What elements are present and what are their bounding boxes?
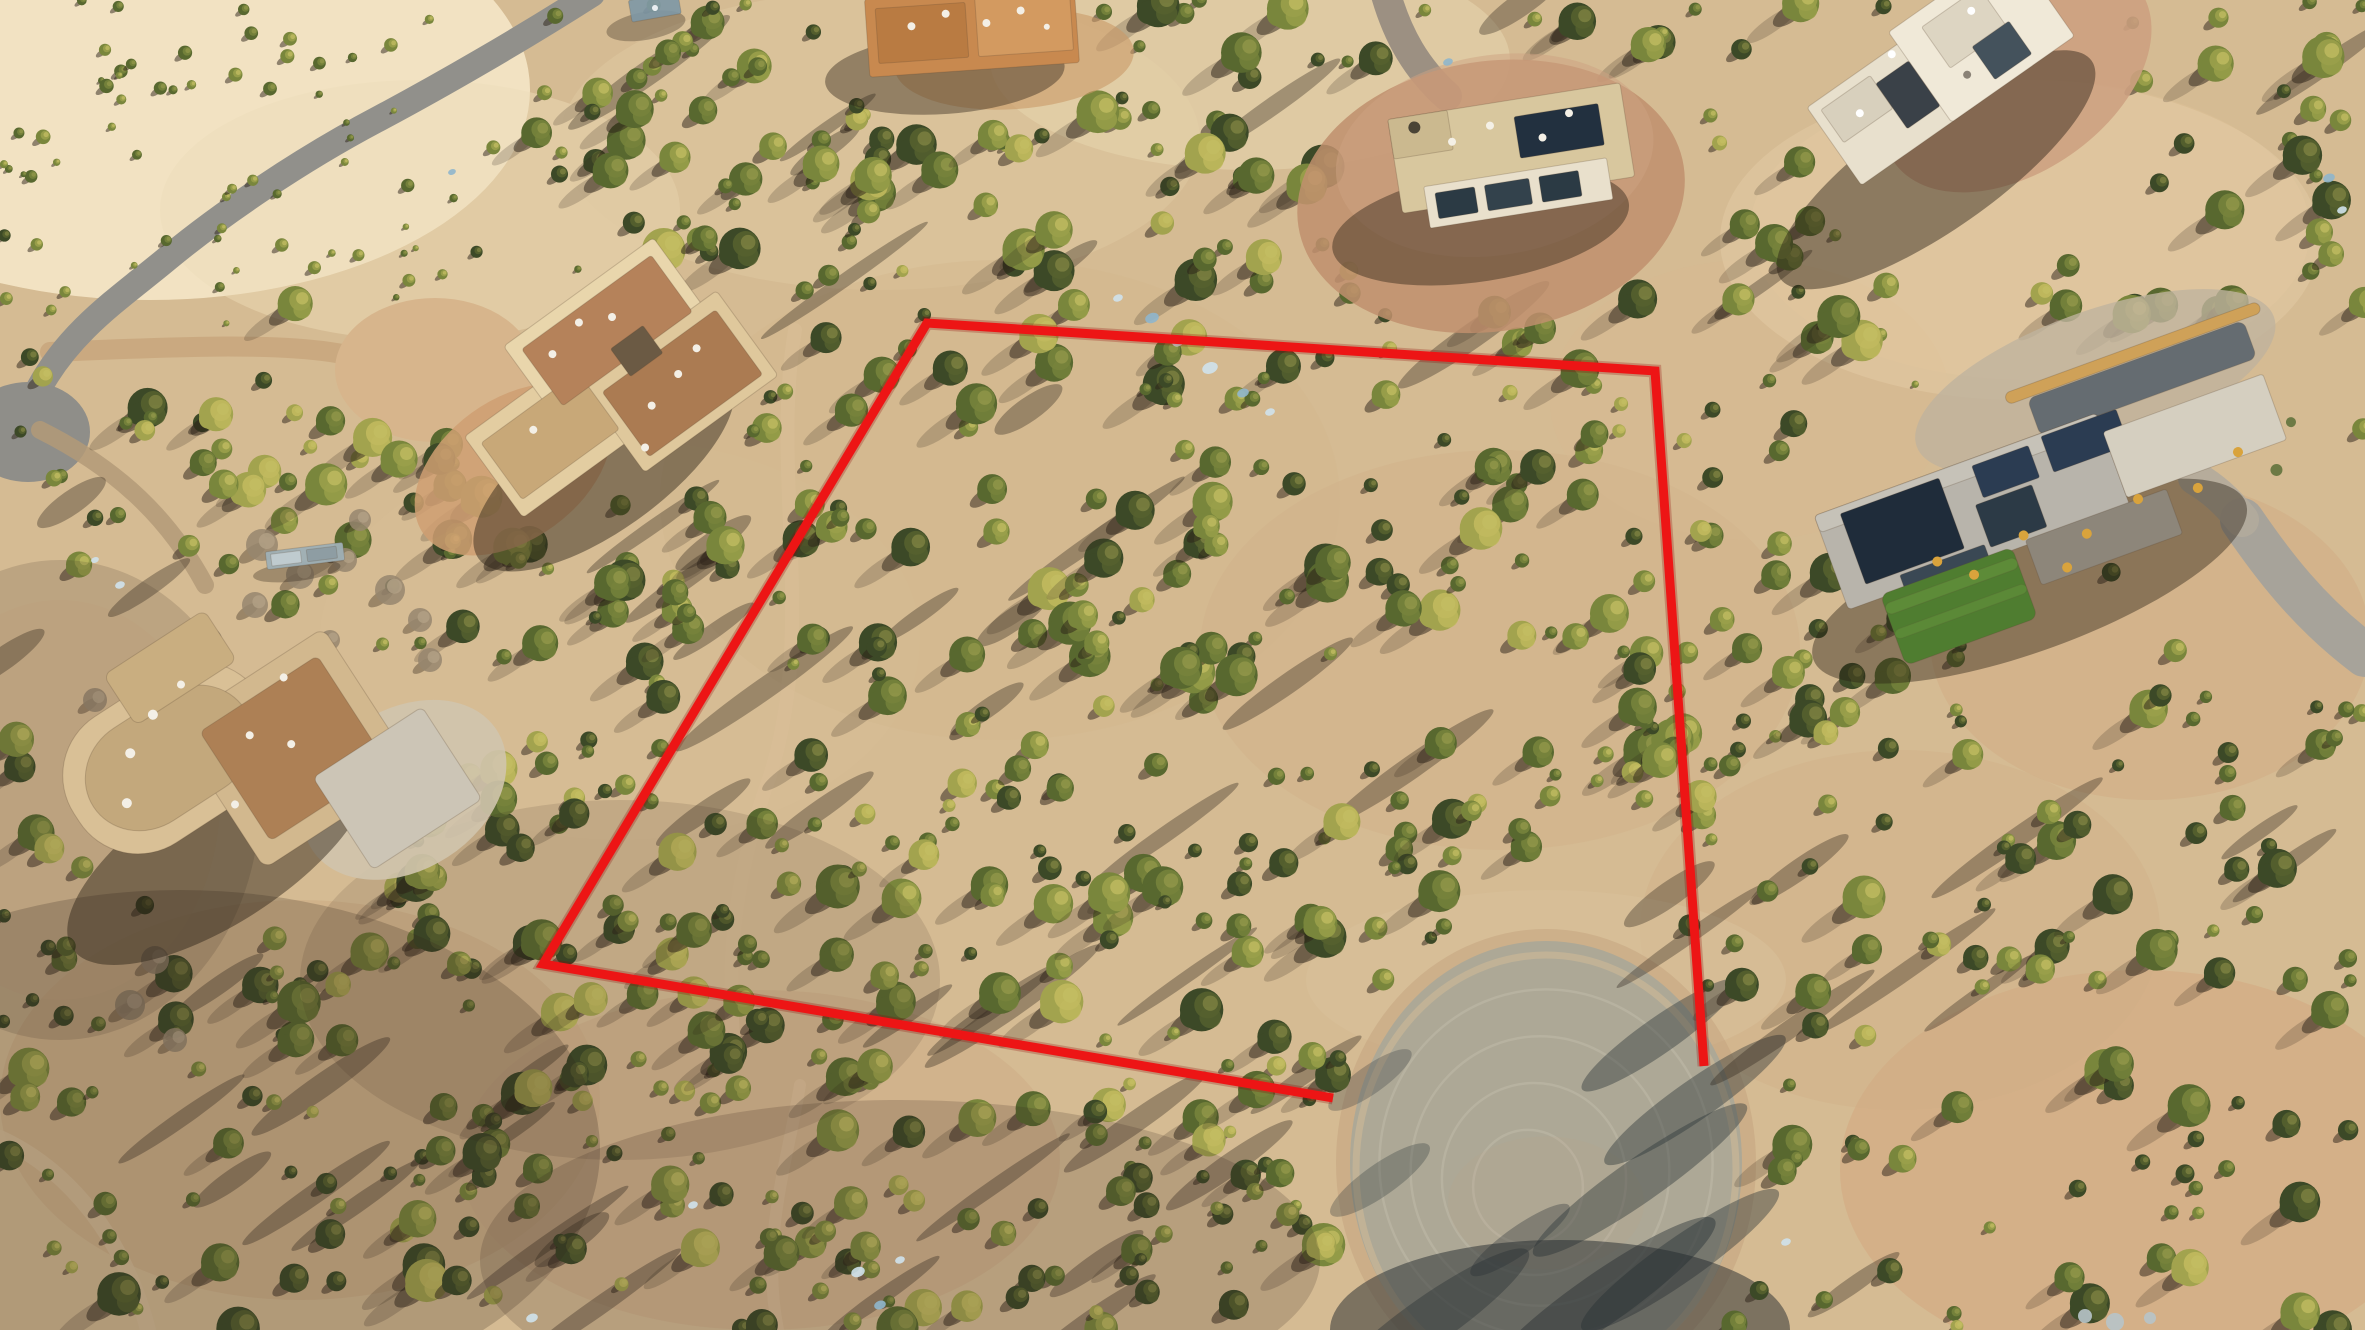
aerial-photo-canvas bbox=[0, 0, 2365, 1330]
aerial-photo bbox=[0, 0, 2365, 1330]
